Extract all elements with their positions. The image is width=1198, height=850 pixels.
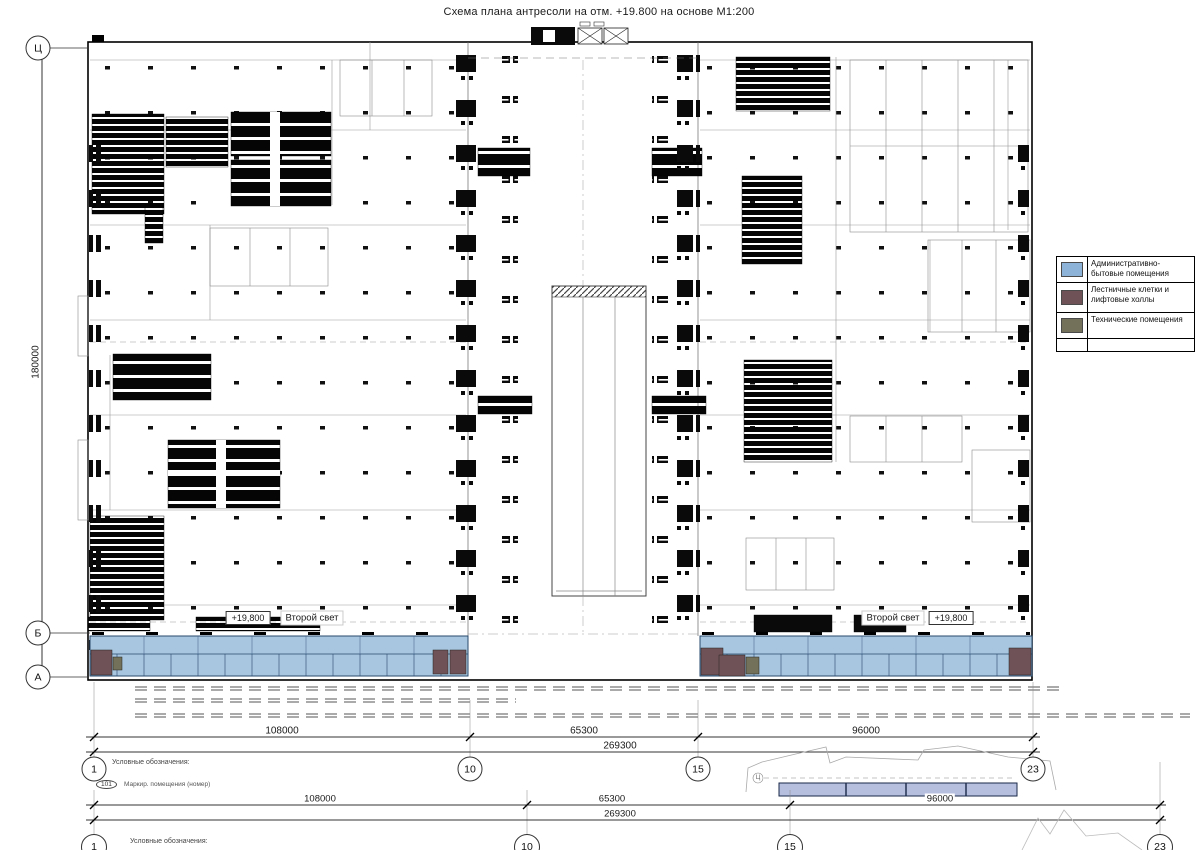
room-mark-text: Маркир. помещения (номер): [124, 781, 210, 788]
dim-total-strip2: 269300: [602, 809, 638, 820]
dimension-line-vertical: [38, 44, 90, 681]
legend-row-empty: [1057, 339, 1194, 351]
legend-row-admin: Административно-бытовые помещения: [1057, 257, 1194, 283]
second-light-label-right: Второй свет: [861, 611, 924, 626]
admin-strip-right: [700, 634, 1032, 677]
grid-bubble-1-strip1: 1: [82, 757, 107, 782]
axis-bubble-b: Б: [26, 621, 51, 646]
dimension-lines-strip1: [86, 682, 1040, 758]
grid-bubble-15-strip1: 15: [686, 757, 711, 782]
key-plan-axis-label: Ц: [756, 775, 760, 781]
legend-label-stairs: Лестничные клетки и лифтовые холлы: [1088, 283, 1194, 312]
second-light-label-left: Второй свет: [280, 611, 343, 626]
elevation-mark-right: +19,800: [929, 611, 974, 625]
dimension-lines-strip2: [86, 762, 1166, 850]
dim-seg1-strip2: 108000: [302, 794, 338, 805]
legend-row-stairs: Лестничные клетки и лифтовые холлы: [1057, 283, 1194, 313]
legend-row-tech: Технические помещения: [1057, 313, 1194, 339]
room-mark-number: 101: [96, 780, 117, 789]
admin-strip-left: [90, 634, 468, 677]
notes-heading-1: Условные обозначения:: [112, 759, 190, 766]
elevator-cluster: [531, 22, 628, 45]
grid-bubble-23-strip1: 23: [1021, 757, 1046, 782]
key-plan-inset: [746, 746, 1056, 796]
dim-seg2-strip1: 65300: [568, 726, 600, 737]
dim-total-strip1: 269300: [601, 741, 638, 752]
grid-bubble-10-strip1: 10: [458, 757, 483, 782]
legend-label-admin: Административно-бытовые помещения: [1088, 257, 1194, 282]
legend: Административно-бытовые помещения Лестни…: [1056, 256, 1195, 352]
legend-swatch-tech: [1061, 318, 1083, 333]
notes-heading-2: Условные обозначения:: [130, 838, 208, 845]
dim-height-total: 180000: [31, 343, 42, 380]
floor-plan-canvas: [0, 0, 1198, 850]
legend-swatch-stairs: [1061, 290, 1083, 305]
axis-bubble-a: А: [26, 665, 51, 690]
drawing-sheet: Схема плана антресоли на отм. +19.800 на…: [0, 0, 1198, 850]
dim-seg3-strip2: 96000: [925, 794, 955, 805]
railway-tracks: [135, 687, 1190, 717]
legend-swatch-admin: [1061, 262, 1083, 277]
elevation-mark-left: +19,800: [226, 611, 271, 625]
dim-seg2-strip2: 65300: [597, 794, 627, 805]
dim-seg3-strip1: 96000: [850, 726, 882, 737]
axis-bubble-c: Ц: [26, 36, 51, 61]
sheet-title: Схема плана антресоли на отм. +19.800 на…: [444, 6, 755, 18]
dim-seg1-strip1: 108000: [263, 726, 300, 737]
legend-label-tech: Технические помещения: [1088, 313, 1194, 338]
